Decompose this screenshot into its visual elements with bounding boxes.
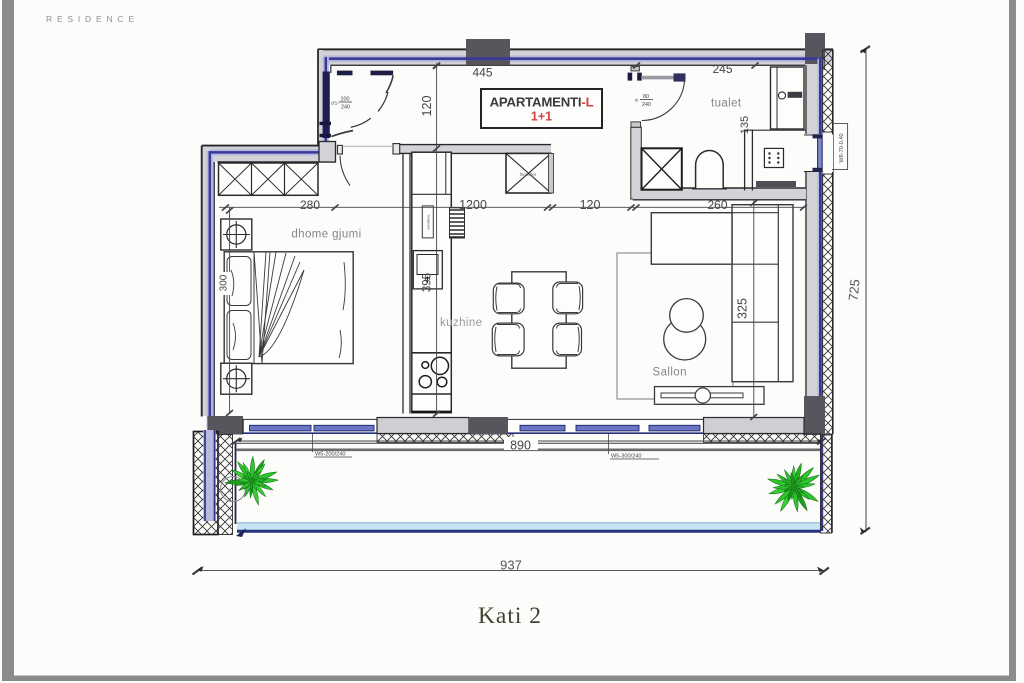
svg-text:APARTAMENTI-L: APARTAMENTI-L: [490, 95, 594, 110]
svg-text:890: 890: [510, 439, 531, 453]
svg-text:d'1-: d'1-: [331, 100, 339, 106]
svg-text:RESIDENCE: RESIDENCE: [46, 14, 139, 24]
svg-text:725: 725: [845, 278, 862, 301]
svg-text:dhome gjumi: dhome gjumi: [291, 229, 361, 241]
svg-text:300: 300: [219, 274, 230, 291]
svg-text:240: 240: [341, 104, 350, 110]
svg-text:frigorifer: frigorifer: [520, 172, 537, 177]
svg-text:1+1: 1+1: [531, 110, 552, 124]
svg-text:280: 280: [300, 198, 320, 212]
svg-text:kuzhine: kuzhine: [440, 317, 482, 329]
svg-text:W6-70-0.40: W6-70-0.40: [839, 133, 845, 162]
svg-text:lavatrice: lavatrice: [426, 214, 431, 230]
svg-text:240: 240: [642, 102, 651, 108]
svg-text:Kati 2: Kati 2: [478, 603, 542, 629]
svg-text:Sallon: Sallon: [653, 367, 687, 379]
svg-text:260: 260: [707, 198, 727, 212]
svg-text:1200: 1200: [459, 198, 487, 212]
svg-text:120: 120: [580, 198, 601, 212]
svg-text:395: 395: [422, 273, 434, 292]
svg-text:135: 135: [739, 116, 751, 134]
svg-text:d-: d-: [635, 98, 640, 104]
svg-text:937: 937: [500, 558, 522, 573]
svg-text:325: 325: [736, 298, 750, 319]
svg-text:445: 445: [472, 66, 492, 80]
svg-text:245: 245: [712, 62, 732, 76]
svg-text:120: 120: [420, 96, 434, 117]
svg-text:tualet: tualet: [711, 98, 742, 110]
